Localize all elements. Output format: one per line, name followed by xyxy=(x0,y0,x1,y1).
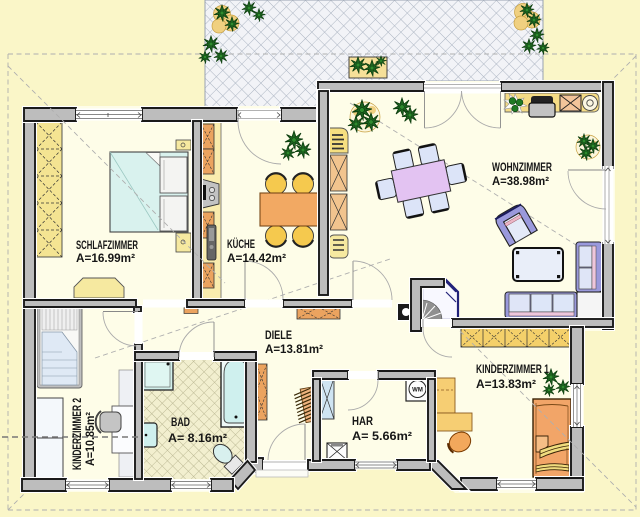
svg-text:WM: WM xyxy=(412,388,423,394)
svg-text:KÜCHE: KÜCHE xyxy=(227,236,255,251)
svg-text:A= 8.16m²: A= 8.16m² xyxy=(168,431,227,445)
svg-text:KINDERZIMMER 2: KINDERZIMMER 2 xyxy=(70,398,84,470)
svg-text:SCHLAFZIMMER: SCHLAFZIMMER xyxy=(76,238,138,252)
svg-text:WOHNZIMMER: WOHNZIMMER xyxy=(492,160,552,174)
svg-text:A=10.85m²: A=10.85m² xyxy=(83,412,97,466)
svg-text:A=16.99m²: A=16.99m² xyxy=(76,251,135,265)
svg-text:A= 5.66m²: A= 5.66m² xyxy=(352,429,412,443)
svg-text:A=14.42m²: A=14.42m² xyxy=(227,251,286,265)
svg-text:DIELE: DIELE xyxy=(265,328,292,342)
svg-text:A=38.98m²: A=38.98m² xyxy=(492,174,549,188)
svg-text:KINDERZIMMER 1: KINDERZIMMER 1 xyxy=(476,362,549,376)
svg-text:A=13.81m²: A=13.81m² xyxy=(265,342,323,356)
svg-text:HAR: HAR xyxy=(352,414,373,428)
svg-text:A=13.83m²: A=13.83m² xyxy=(476,377,536,391)
svg-text:BAD: BAD xyxy=(171,415,190,429)
